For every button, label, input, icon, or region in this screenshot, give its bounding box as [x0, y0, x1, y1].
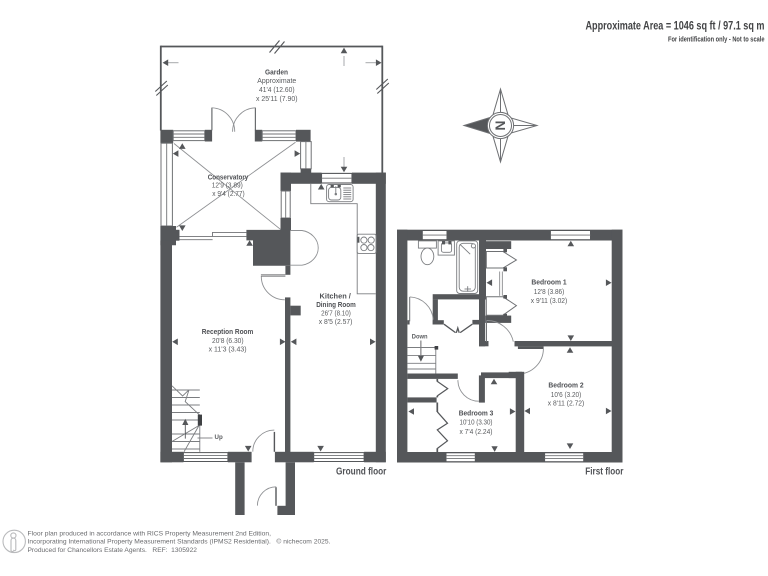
svg-text:41'4 (12.60): 41'4 (12.60) [259, 85, 295, 94]
svg-text:Bedroom 2: Bedroom 2 [548, 380, 583, 389]
svg-text:Floor plan produced in accorda: Floor plan produced in accordance with R… [28, 531, 272, 538]
svg-text:10'10 (3.30): 10'10 (3.30) [460, 418, 493, 427]
svg-text:Bedroom 3: Bedroom 3 [459, 408, 494, 417]
svg-text:For identification only - Not: For identification only - Not to scale [668, 37, 765, 44]
svg-text:Reception Room: Reception Room [202, 327, 254, 336]
svg-text:x 9'4 (2.77): x 9'4 (2.77) [212, 189, 244, 198]
svg-text:Approximate Area = 1046 sq ft: Approximate Area = 1046 sq ft / 97.1 sq … [586, 20, 765, 33]
svg-text:x 9'11 (3.02): x 9'11 (3.02) [531, 296, 568, 305]
svg-text:x 25'11 (7.90): x 25'11 (7.90) [256, 94, 298, 103]
svg-text:x 8'5 (2.57): x 8'5 (2.57) [319, 317, 353, 326]
svg-text:12'8 (3.86): 12'8 (3.86) [534, 287, 565, 296]
svg-text:Kitchen /: Kitchen / [320, 291, 352, 300]
svg-text:Up: Up [215, 434, 223, 441]
svg-text:Bedroom 1: Bedroom 1 [531, 278, 567, 287]
svg-text:x 8'11 (2.72): x 8'11 (2.72) [548, 398, 585, 407]
svg-text:First floor: First floor [585, 467, 623, 478]
svg-text:Produced for Chancellors Estat: Produced for Chancellors Estate Agents. … [28, 547, 198, 554]
svg-text:x 11'3 (3.43): x 11'3 (3.43) [209, 345, 247, 354]
svg-text:Approximate: Approximate [257, 76, 296, 85]
svg-text:x 7'4 (2.24): x 7'4 (2.24) [460, 427, 493, 436]
svg-text:Ground floor: Ground floor [336, 466, 386, 477]
svg-text:Garden: Garden [265, 67, 288, 76]
svg-text:Incorporating International Pr: Incorporating International Property Mea… [28, 537, 331, 545]
svg-text:N: N [493, 120, 509, 130]
svg-text:Down: Down [412, 334, 428, 341]
